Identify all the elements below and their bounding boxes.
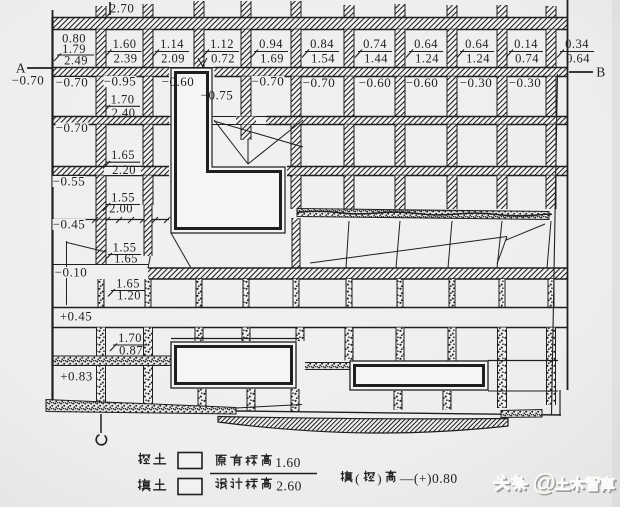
svg-text:−0.55: −0.55 <box>53 174 86 189</box>
svg-text:1.60: 1.60 <box>113 37 137 51</box>
svg-text:0.64: 0.64 <box>465 37 489 51</box>
svg-text:+0.83: +0.83 <box>60 369 93 384</box>
svg-text:1.44: 1.44 <box>364 52 388 66</box>
svg-text:−0.70: −0.70 <box>12 73 45 88</box>
svg-text:0.74: 0.74 <box>363 37 387 51</box>
svg-text:1.65: 1.65 <box>111 148 135 162</box>
svg-text:−0.10: −0.10 <box>55 265 88 280</box>
svg-text:1.70: 1.70 <box>111 93 135 107</box>
svg-text:2.09: 2.09 <box>161 52 185 66</box>
svg-text:−0.75: −0.75 <box>201 88 234 103</box>
svg-text:(: ( <box>355 471 360 486</box>
svg-text:2.70: 2.70 <box>110 1 135 16</box>
svg-text:0.72: 0.72 <box>211 52 235 66</box>
svg-text:@: @ <box>533 470 556 497</box>
svg-text:−0.60: −0.60 <box>406 75 439 90</box>
svg-text:1.14: 1.14 <box>160 37 184 51</box>
svg-text:−0.70: −0.70 <box>303 75 336 90</box>
svg-text:0.14: 0.14 <box>514 37 538 51</box>
svg-text:1.69: 1.69 <box>260 52 284 66</box>
svg-text:2.00: 2.00 <box>109 202 133 216</box>
svg-text:−0.45: −0.45 <box>53 217 86 232</box>
svg-text:1.24: 1.24 <box>466 52 490 66</box>
svg-text:1.60: 1.60 <box>275 455 301 470</box>
svg-text:2.49: 2.49 <box>64 54 88 68</box>
svg-text:1.54: 1.54 <box>311 52 335 66</box>
svg-text:+0.45: +0.45 <box>60 309 93 324</box>
svg-text:1.24: 1.24 <box>415 52 439 66</box>
svg-text:2.40: 2.40 <box>112 106 136 120</box>
svg-text:0.87: 0.87 <box>119 344 143 358</box>
svg-text:−0.70: −0.70 <box>252 74 285 89</box>
svg-text:0.34: 0.34 <box>565 37 589 51</box>
svg-text:−0.70: −0.70 <box>56 75 89 90</box>
svg-text:1.20: 1.20 <box>117 289 141 303</box>
svg-text:0.74: 0.74 <box>515 52 539 66</box>
svg-text:−0.30: −0.30 <box>509 75 542 90</box>
svg-text:B: B <box>596 65 606 80</box>
svg-text:0.94: 0.94 <box>259 37 283 51</box>
svg-text:2.60: 2.60 <box>276 479 302 494</box>
svg-text:−0.95: −0.95 <box>104 74 137 89</box>
svg-text:0.64: 0.64 <box>566 52 590 66</box>
svg-text:): ) <box>377 471 382 486</box>
svg-text:2.39: 2.39 <box>114 52 138 66</box>
svg-text:−0.60: −0.60 <box>162 74 195 89</box>
svg-text:1.65: 1.65 <box>114 252 138 266</box>
svg-text:0.64: 0.64 <box>414 37 438 51</box>
svg-text:2.20: 2.20 <box>112 163 136 177</box>
svg-text:−0.70: −0.70 <box>56 120 89 135</box>
svg-text:1.12: 1.12 <box>210 37 234 51</box>
svg-text:0.84: 0.84 <box>310 37 334 51</box>
svg-text:−0.60: −0.60 <box>359 75 392 90</box>
svg-text:−0.30: −0.30 <box>460 75 493 90</box>
svg-text:—(+)0.80: —(+)0.80 <box>399 471 458 486</box>
